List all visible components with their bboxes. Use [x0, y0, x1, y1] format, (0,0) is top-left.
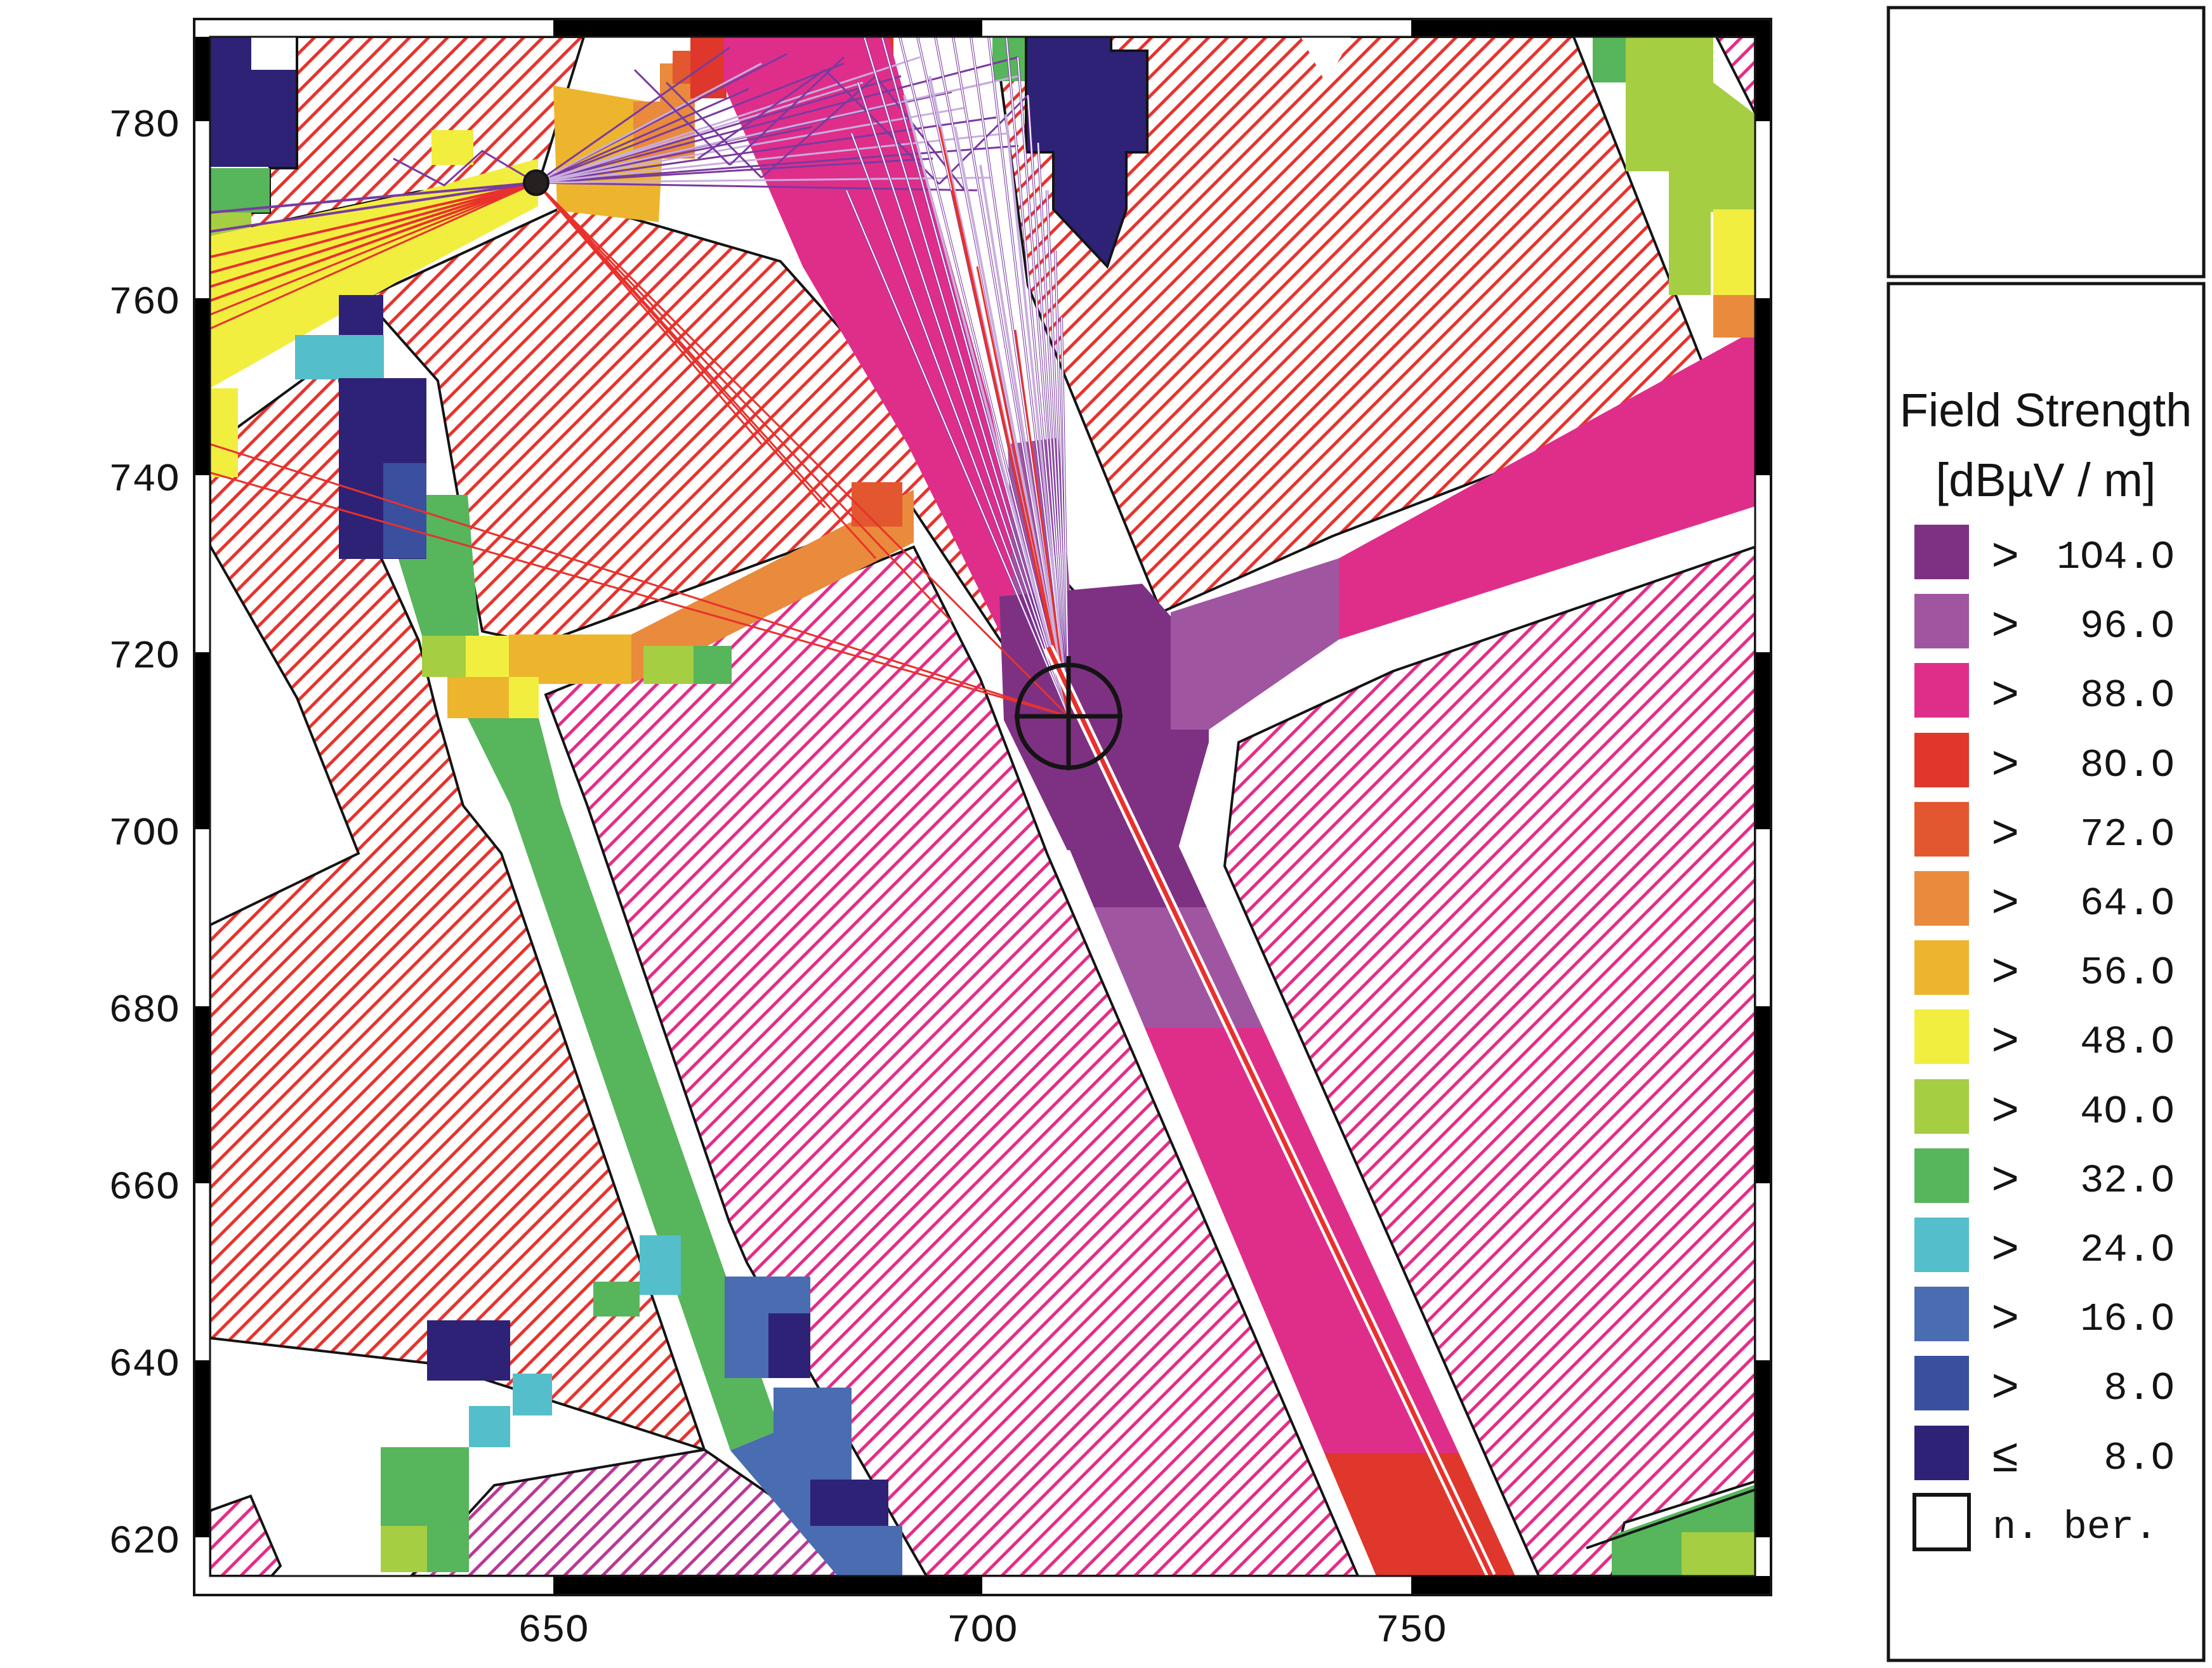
svg-text:48.O: 48.O: [2080, 1020, 2175, 1065]
svg-text:>: >: [1991, 1086, 2019, 1139]
svg-text:>: >: [1991, 532, 2019, 585]
svg-text:>: >: [1991, 1225, 2019, 1278]
svg-text:16.O: 16.O: [2080, 1297, 2175, 1342]
svg-text:68O: 68O: [109, 988, 180, 1034]
svg-text:64O: 64O: [109, 1343, 180, 1388]
svg-text:72.O: 72.O: [2080, 812, 2175, 857]
svg-text:64.O: 64.O: [2080, 881, 2175, 926]
svg-text:≤: ≤: [1991, 1433, 2019, 1486]
svg-text:8O.O: 8O.O: [2080, 743, 2175, 788]
svg-text:>: >: [1991, 1155, 2019, 1209]
svg-text:76O: 76O: [109, 280, 180, 325]
svg-text:[dBµV / m]: [dBµV / m]: [1936, 454, 2156, 506]
svg-text:8.O: 8.O: [2103, 1436, 2175, 1481]
svg-text:>: >: [1991, 1294, 2019, 1347]
svg-text:56.O: 56.O: [2080, 950, 2175, 995]
svg-text:8.O: 8.O: [2103, 1366, 2175, 1411]
svg-text:62O: 62O: [109, 1520, 180, 1565]
svg-text:>: >: [1991, 809, 2019, 862]
svg-text:n. ber.: n. ber.: [1992, 1505, 2157, 1550]
svg-text:66O: 66O: [109, 1166, 180, 1211]
svg-text:72O: 72O: [109, 634, 180, 680]
svg-text:74O: 74O: [109, 457, 180, 502]
svg-text:78O: 78O: [109, 103, 180, 148]
svg-text:75O: 75O: [1376, 1608, 1447, 1653]
svg-text:>: >: [1991, 878, 2019, 931]
svg-text:65O: 65O: [518, 1608, 589, 1653]
svg-text:Field Strength: Field Strength: [1900, 384, 2192, 437]
svg-text:>: >: [1991, 740, 2019, 793]
svg-text:>: >: [1991, 1363, 2019, 1416]
svg-text:24.O: 24.O: [2080, 1228, 2175, 1273]
svg-text:96.O: 96.O: [2080, 604, 2175, 649]
svg-text:>: >: [1991, 1016, 2019, 1070]
svg-text:1O4.O: 1O4.O: [2057, 535, 2175, 580]
svg-text:7OO: 7OO: [109, 811, 180, 857]
svg-text:>: >: [1991, 947, 2019, 1001]
svg-text:7OO: 7OO: [947, 1608, 1018, 1653]
svg-text:4O.O: 4O.O: [2080, 1089, 2175, 1134]
svg-text:>: >: [1991, 601, 2019, 654]
svg-text:32.O: 32.O: [2080, 1159, 2175, 1204]
svg-text:>: >: [1991, 670, 2019, 723]
svg-text:88.O: 88.O: [2080, 673, 2175, 718]
